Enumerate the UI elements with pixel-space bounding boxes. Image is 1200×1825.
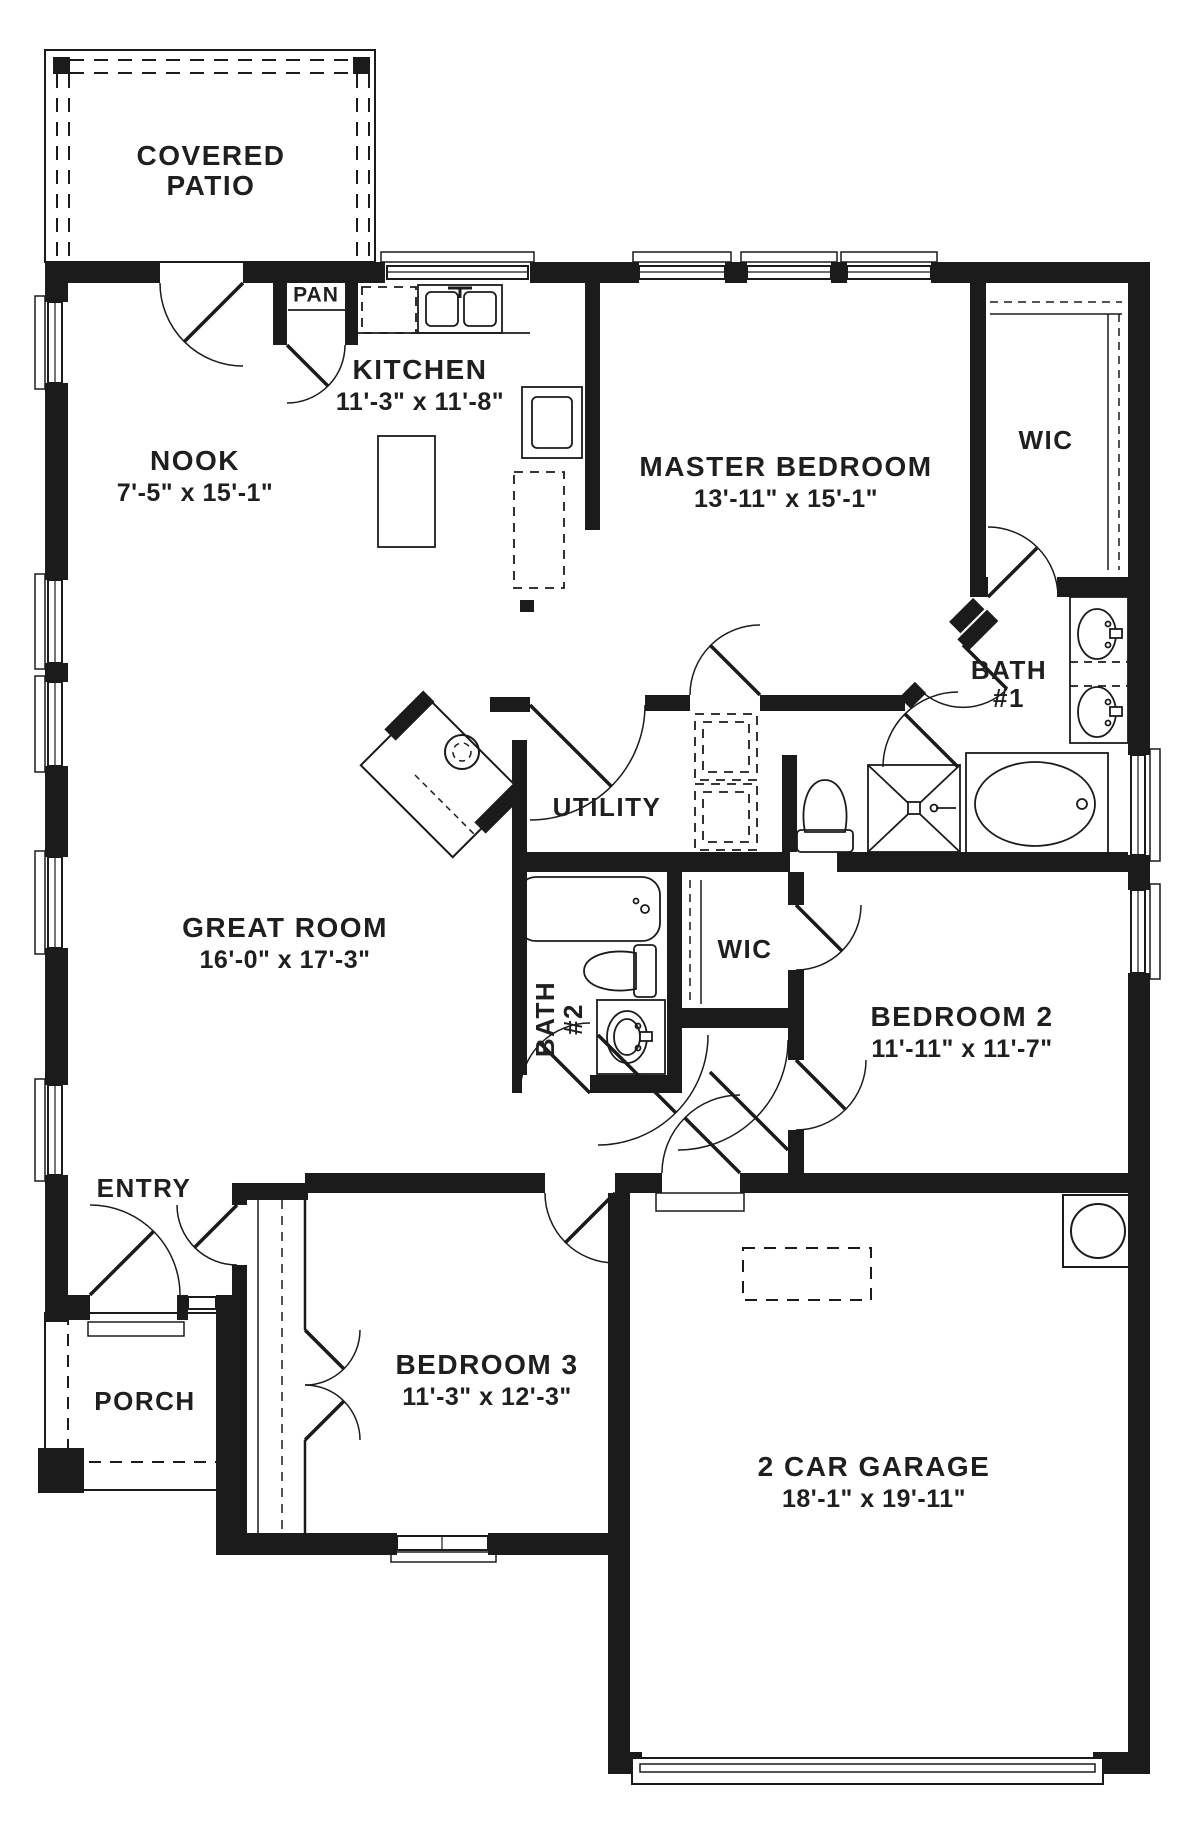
door-leaf: [530, 705, 611, 786]
wall: [760, 695, 905, 711]
door-leaf: [287, 345, 328, 386]
wall: [1128, 855, 1150, 890]
wall: [667, 872, 682, 1008]
wall: [45, 663, 68, 682]
toilet-bowl: [584, 952, 636, 991]
garage-door: [632, 1758, 1103, 1784]
door-leaf: [195, 1205, 237, 1247]
floorplan-drawing: [0, 0, 1200, 1825]
wall: [45, 383, 68, 580]
door-leaf: [540, 1043, 590, 1093]
faucet: [1110, 629, 1122, 638]
door-leaf: [796, 1060, 845, 1109]
water-heater: [1071, 1204, 1125, 1258]
washer-inner: [703, 722, 749, 772]
tub: [518, 877, 660, 941]
attic-access: [743, 1248, 871, 1300]
patio-post: [53, 57, 70, 74]
wall: [232, 1183, 308, 1200]
wall: [667, 1028, 682, 1075]
wall: [788, 1130, 804, 1193]
dryer-inner: [703, 792, 749, 842]
wall: [1128, 262, 1150, 755]
wall: [725, 262, 747, 283]
door-leaf: [305, 1330, 344, 1369]
kitchen-island: [378, 436, 435, 547]
wall: [232, 1265, 247, 1295]
water-heater-pad: [1063, 1195, 1133, 1267]
wall: [45, 262, 68, 302]
door-leaf: [685, 1118, 740, 1173]
door-leaf: [963, 645, 1007, 689]
door-leaf: [565, 1193, 615, 1243]
faucet: [1110, 707, 1122, 716]
wall: [243, 262, 385, 283]
floor-plan: COVERED PATIO PAN KITCHEN 11'-3" x 11'-8…: [0, 0, 1200, 1825]
tub-faucet: [641, 905, 649, 913]
wall: [970, 283, 986, 597]
wall: [788, 1028, 804, 1060]
wall: [490, 697, 530, 712]
toilet-bowl: [804, 780, 847, 832]
wall: [788, 970, 804, 1028]
garage-fixtures: [632, 1195, 1133, 1784]
tub-faucet: [1077, 799, 1087, 809]
kitchen-upper-cabinet: [514, 472, 564, 588]
wall: [345, 283, 358, 345]
patio-post: [353, 57, 370, 74]
wall: [585, 283, 600, 530]
covered-patio-structure: [45, 50, 375, 262]
kitchen-fixtures: [288, 285, 582, 588]
wall: [608, 1193, 630, 1774]
door-leaf: [905, 714, 958, 767]
toilet-tank: [797, 830, 853, 852]
window: [188, 1297, 216, 1309]
wall: [788, 872, 804, 905]
door-leaf: [305, 1401, 344, 1440]
wall: [1057, 577, 1128, 597]
washer: [695, 714, 757, 780]
walls: [38, 57, 1150, 1774]
wall: [530, 262, 639, 283]
wall: [1128, 1193, 1150, 1774]
wall: [520, 600, 534, 612]
wall: [45, 766, 68, 857]
wall: [177, 1295, 188, 1320]
wall: [615, 1173, 662, 1193]
door-leaf: [184, 283, 243, 342]
wall: [273, 283, 287, 345]
wall: [232, 1200, 247, 1205]
wall: [931, 262, 1150, 283]
wall: [782, 755, 797, 852]
faucet: [640, 1032, 652, 1041]
closet-shelving: [258, 302, 1122, 1533]
front-step: [88, 1322, 184, 1336]
wall: [45, 948, 68, 1085]
wall: [590, 1075, 682, 1093]
wall: [667, 1008, 804, 1028]
wall: [1128, 973, 1150, 1193]
utility-fixtures: [695, 714, 757, 850]
wall: [645, 695, 690, 711]
wall: [512, 872, 527, 1075]
wall: [305, 1173, 545, 1193]
wall: [512, 852, 790, 872]
door-leaf: [90, 1231, 154, 1295]
garage-step: [656, 1193, 744, 1211]
refrigerator-space: [362, 287, 416, 333]
dryer: [695, 784, 757, 850]
wall: [831, 262, 847, 283]
door-arc: [919, 689, 1007, 707]
toilet-tank: [634, 945, 656, 997]
door-leaf: [710, 1072, 788, 1150]
wall: [971, 577, 988, 597]
door-leaf: [710, 645, 760, 695]
kitchen-sink-basin: [426, 292, 458, 326]
kitchen-range-inner: [532, 397, 572, 448]
door-leaf: [796, 905, 842, 951]
corner-fireplace: [361, 690, 525, 857]
kitchen-sink-basin: [464, 292, 496, 326]
wall: [220, 1533, 397, 1555]
wall: [216, 1295, 247, 1555]
door-leaf: [988, 548, 1037, 597]
